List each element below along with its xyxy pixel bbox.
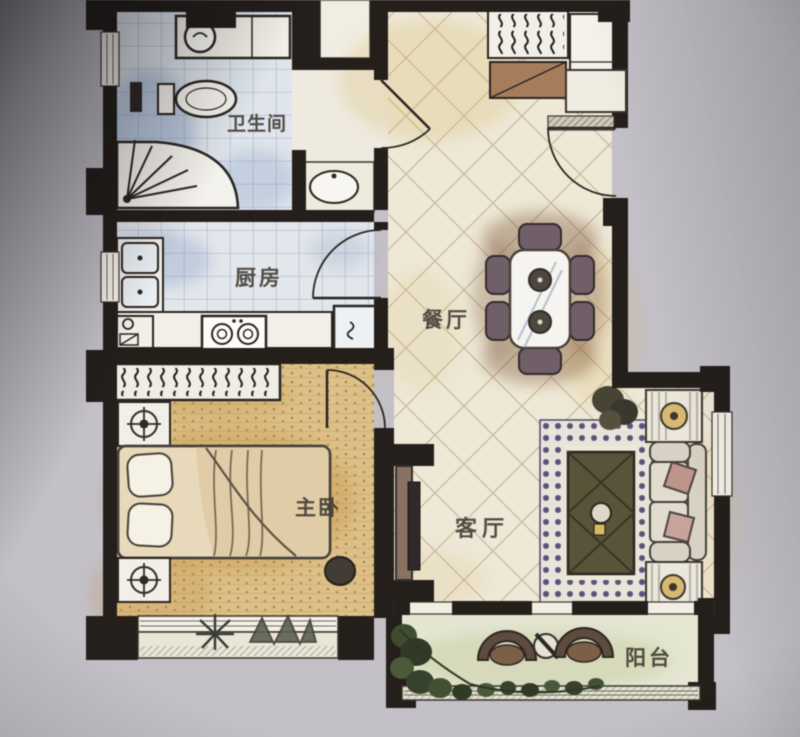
nightstand-bottom <box>118 558 170 602</box>
room-label-kitchen: 厨房 <box>235 266 283 290</box>
room-label-balcony: 阳台 <box>625 646 673 670</box>
room-label-bedroom: 主卧 <box>295 497 341 520</box>
kitchen-base-cabinet <box>117 316 153 348</box>
entry-coat-closet <box>488 10 568 58</box>
living-window <box>712 412 732 496</box>
foot-stool <box>325 557 355 585</box>
room-label-dining: 餐厅 <box>422 308 470 332</box>
room-label-living: 客厅 <box>455 516 509 541</box>
throw-pillow <box>664 512 694 542</box>
dining-table <box>510 250 570 348</box>
bathroom-window <box>101 32 119 86</box>
floor-plan: 卫生间 厨房 餐厅 主卧 客厅 阳台 <box>0 0 800 737</box>
shoe-cabinet <box>490 62 566 98</box>
coffee-table <box>568 452 634 574</box>
refrigerator <box>334 306 376 350</box>
sliding-door <box>394 601 714 615</box>
side-table-top <box>646 390 702 442</box>
tv <box>408 482 420 570</box>
sofa <box>650 442 706 562</box>
kitchen-window <box>101 252 119 302</box>
bedroom-wardrobe <box>112 364 280 400</box>
stove <box>202 316 266 350</box>
entry-alcove <box>566 70 626 112</box>
nightstand-top <box>118 402 170 446</box>
floor-plan-photo: 卫生间 厨房 餐厅 主卧 客厅 阳台 <box>0 0 800 737</box>
room-label-bathroom: 卫生间 <box>227 112 287 135</box>
